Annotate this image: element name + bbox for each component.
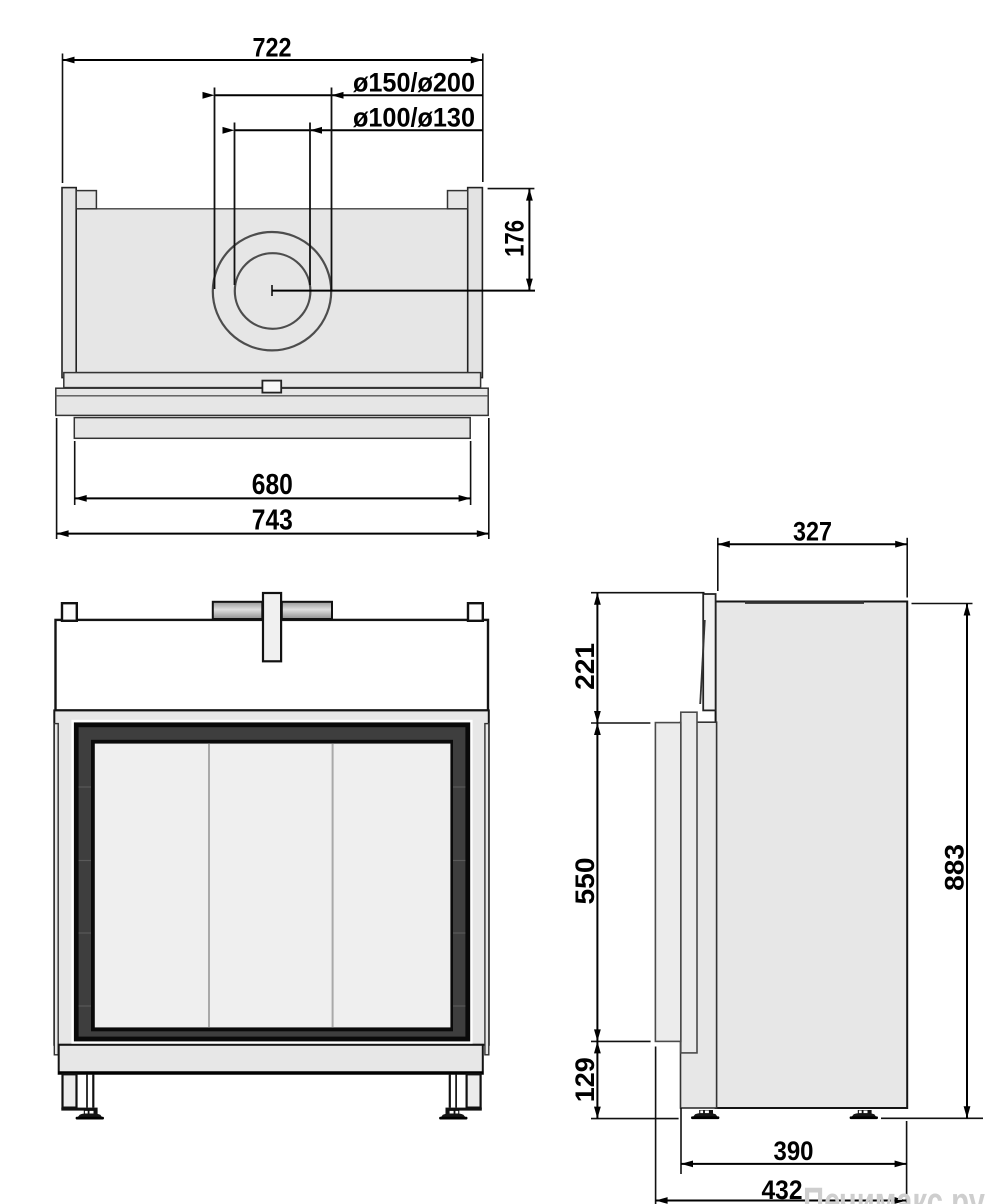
svg-text:883: 883 bbox=[940, 844, 970, 891]
svg-text:680: 680 bbox=[252, 469, 293, 501]
svg-text:Печимакс.ру: Печимакс.ру bbox=[803, 1180, 986, 1204]
svg-text:390: 390 bbox=[774, 1136, 814, 1166]
svg-text:722: 722 bbox=[253, 33, 292, 63]
svg-text:432: 432 bbox=[762, 1175, 803, 1204]
svg-text:176: 176 bbox=[500, 220, 530, 257]
svg-text:ø100/ø130: ø100/ø130 bbox=[353, 103, 475, 133]
svg-text:ø150/ø200: ø150/ø200 bbox=[353, 68, 475, 98]
svg-text:743: 743 bbox=[252, 505, 293, 537]
svg-text:327: 327 bbox=[793, 516, 832, 546]
svg-text:221: 221 bbox=[570, 643, 600, 690]
svg-text:129: 129 bbox=[570, 1057, 600, 1102]
svg-text:550: 550 bbox=[570, 858, 600, 905]
